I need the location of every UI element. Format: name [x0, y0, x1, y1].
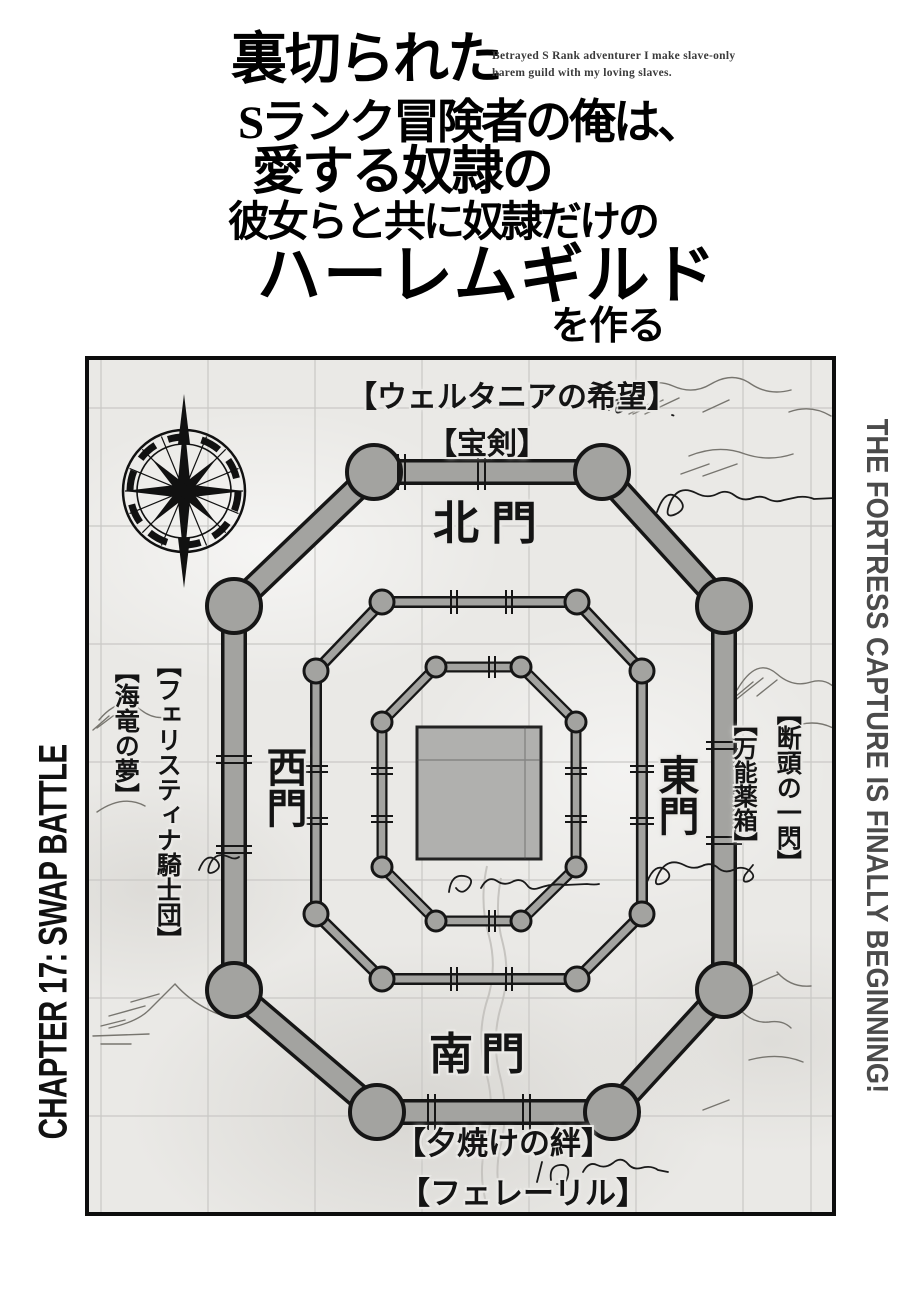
signature-scribble-top-right	[657, 490, 832, 515]
title-line-6: を作る	[551, 307, 665, 346]
title-line-3: 愛する奴隷の	[252, 147, 552, 199]
map-label-east-medicine: 【万能薬箱】	[729, 712, 754, 856]
map-label-top-item: 【宝剣】	[427, 429, 547, 461]
north-gate-label: 北門	[433, 500, 549, 548]
map-label-south-name: 【フェレーリル】	[399, 1178, 647, 1211]
title-line-2: Sランク冒険者の俺は、	[238, 100, 701, 147]
english-subtitle-line-1: Betrayed S Rank adventurer I make slave-…	[492, 48, 735, 65]
tagline-caption: THE FORTRESS CAPTURE IS FINALLY BEGINNIN…	[859, 419, 895, 1093]
west-gate-label: 西門	[261, 746, 304, 828]
english-subtitle: Betrayed S Rank adventurer I make slave-…	[492, 48, 735, 81]
map-label-south-bond: 【夕焼けの絆】	[395, 1128, 612, 1161]
map-label-west-dream: 【海竜の夢】	[111, 658, 137, 808]
map-label-west-knights: 【フェリスティナ騎士団】	[153, 652, 179, 952]
title-line-5: ハーレムギルド	[257, 244, 718, 308]
title-line-1: 裏切られた	[231, 32, 501, 88]
fortress-map-drawing	[89, 360, 832, 1212]
chapter-caption: CHAPTER 17: SWAP BATTLE	[32, 745, 77, 1140]
fortress-map-panel: 【ウェルタニアの希望】 【宝剣】 北門 西門 東門 南門 【フェリスティナ騎士団…	[85, 356, 836, 1216]
map-label-east-flash: 【断頭の一閃】	[773, 700, 799, 875]
central-keep	[417, 727, 541, 859]
title-line-4: 彼女らと共に奴隷だけの	[228, 202, 657, 244]
south-gate-label: 南門	[429, 1032, 533, 1078]
signature-scribble-east	[647, 862, 753, 884]
compass-rose-icon	[123, 394, 245, 588]
manga-page: 裏切られた Betrayed S Rank adventurer I make …	[0, 0, 914, 1300]
english-subtitle-line-2: harem guild with my loving slaves.	[492, 65, 735, 82]
map-label-top-name: 【ウェルタニアの希望】	[347, 382, 677, 414]
east-gate-label: 東門	[653, 754, 696, 836]
